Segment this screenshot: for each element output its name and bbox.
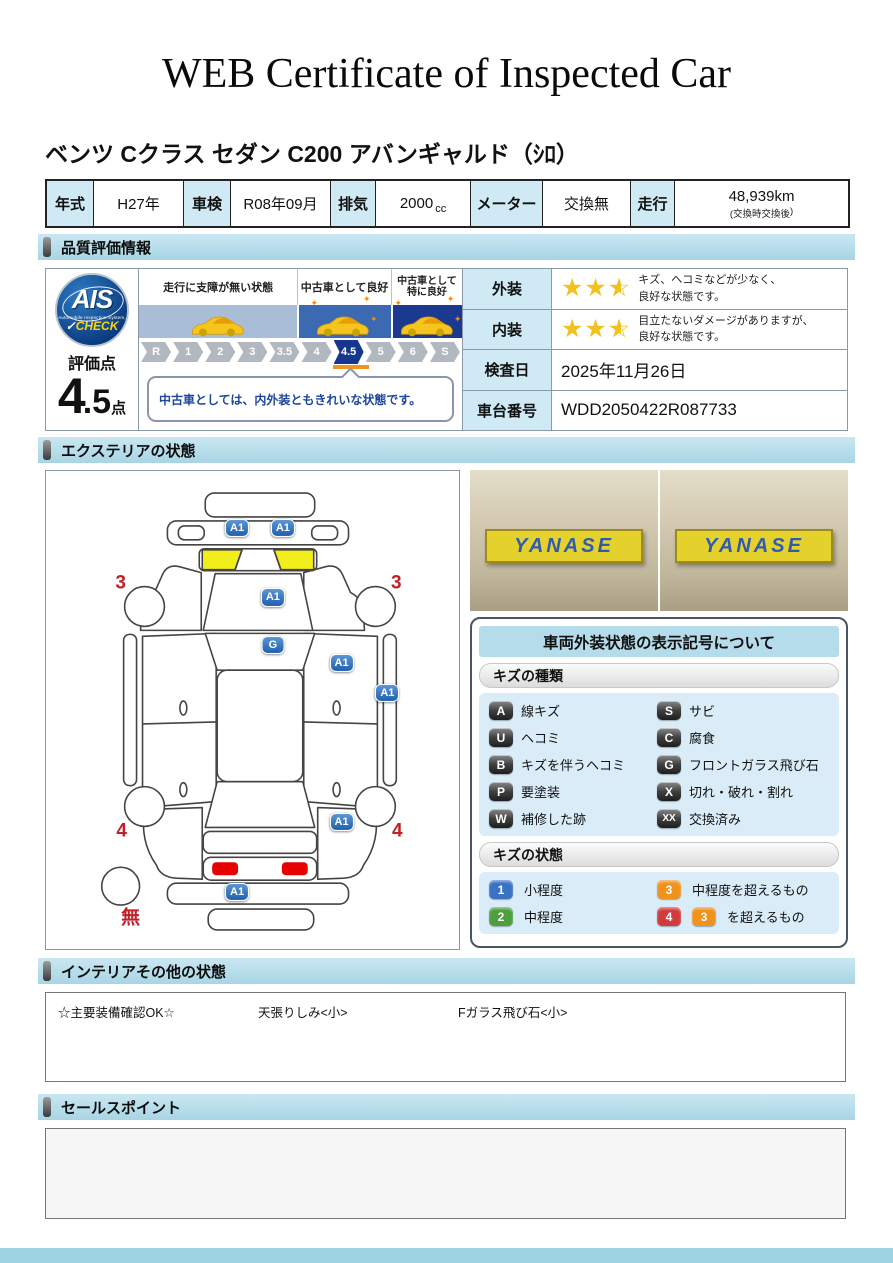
spec-year-label: 年式 [47,181,94,226]
table-row: 車台番号 WDD2050422R087733 [463,391,847,431]
sparkle-icon: ✦ [370,315,378,324]
legend-kind-item: W補修した跡 [489,805,657,832]
kind-label: 切れ・破れ・割れ [689,782,793,801]
inspection-date-label: 検査日 [463,350,552,390]
mileage-number: 48,939km [729,188,795,205]
mileage-note-open: (交換時 [730,206,762,220]
legend-kind-grid: A線キズSサビUヘコミC腐食Bキズを伴うヘコミGフロントガラス飛び石P要塗装X切… [479,693,839,836]
score-unit: 点 [111,402,126,416]
kind-badge-U: U [489,728,513,747]
damage-legend: 車両外装状態の表示記号について キズの種類 A線キズSサビUヘコミC腐食Bキズを… [470,617,848,948]
car-icon [189,301,245,337]
kind-badge-B: B [489,755,513,774]
damage-marker-G: G [261,636,284,654]
kind-label: サビ [689,701,715,720]
rating-comment-bubble: 中古車としては、内外装ともきれいな状態です。 [147,376,454,422]
star-full-icon: ★ [584,274,607,302]
star-rating: ★★☆★ [561,317,631,342]
spec-year-value: H27年 [94,181,184,226]
damage-marker-A1: A1 [375,684,399,702]
section-header-quality: 品質評価情報 [38,234,855,260]
interior-rating-value: ★★☆★ 目立たないダメージがありますが、 良好な状態です。 [552,310,847,350]
section-title: 品質評価情報 [61,237,151,258]
scale-step-3: 3 [237,342,267,362]
legend-state-grid: 1小程度3中程度を超えるもの2中程度43を超えるもの [479,872,839,934]
score-fraction: .5 [83,387,111,418]
sales-point-box [45,1128,846,1219]
interior-notes-box: ☆主要装備確認OK☆天張りしみ<小>Fガラス飛び石<小> [45,992,846,1082]
damage-marker-A1: A1 [225,883,249,901]
section-header-interior: インテリアその他の状態 [38,958,855,984]
header-accent-bar [43,237,51,257]
header-accent-bar [43,440,51,460]
kind-label: 交換済み [689,809,741,828]
mileage-note-mid: 交換後 [761,206,790,220]
scale-step-5: 5 [366,342,396,362]
text-line: キズ、ヘコミなどが少なく、 [638,274,781,286]
star-rating: ★★☆★ [561,276,631,301]
scale-step-4: 4 [301,342,331,362]
legend-state-item: 2中程度 [489,903,657,930]
spec-displacement-value: 2000 cc [376,181,471,226]
rating-detail-table: 外装 ★★☆★ キズ、ヘコミなどが少なく、 良好な状態です。 内装 ★★☆★ 目… [463,269,847,430]
ais-score-panel: AIS Automobile Inspection System, ✓CHECK… [46,269,139,430]
quality-box: AIS Automobile Inspection System, ✓CHECK… [45,268,848,431]
wheel-grade-4: 4 [392,822,403,841]
exterior-rating-text: キズ、ヘコミなどが少なく、 良好な状態です。 [638,272,781,305]
kind-badge-W: W [489,809,513,828]
wheel-grade-無: 無 [121,909,140,928]
page-title: WEB Certificate of Inspected Car [0,50,893,98]
check-mark-icon: ✓ [66,319,76,333]
table-row: 内装 ★★☆★ 目立たないダメージがありますが、 良好な状態です。 [463,310,847,351]
legend-state-item: 1小程度 [489,876,657,903]
legend-kind-header: キズの種類 [479,663,839,688]
star-full-icon: ★ [561,315,584,343]
kind-badge-XX: XX [657,809,681,828]
car-icon: ✦✦✦ [314,301,370,337]
state-badge-3: 3 [657,880,681,899]
kind-label: 補修した跡 [521,809,586,828]
legend-state-header: キズの状態 [479,842,839,867]
star-full-icon: ★ [584,315,607,343]
spec-table: 年式 H27年 車検 R08年09月 排気 2000 cc メーター 交換無 走… [45,179,850,228]
legend-kind-item: Gフロントガラス飛び石 [657,751,829,778]
state-label: 中程度を超えるもの [692,880,809,899]
star-half-icon: ☆★ [608,276,631,301]
sparkle-icon: ✦ [394,299,402,308]
interior-note: Fガラス飛び石<小> [458,1002,658,1072]
wheel-grade-3: 3 [115,573,126,592]
damage-marker-A1: A1 [330,812,354,830]
spec-inspection-label: 車検 [184,181,231,226]
scale-step-6: 6 [398,342,428,362]
score-value: 4 .5 点 [58,374,126,419]
check-word: CHECK [76,319,119,333]
exterior-photo: YANASE [660,470,848,611]
zone-label-1: 走行に支障が無い状態 [139,269,297,305]
footer-bar [0,1248,893,1263]
exterior-rating-value: ★★☆★ キズ、ヘコミなどが少なく、 良好な状態です。 [552,269,847,309]
legend-state-item: 43を超えるもの [657,903,829,930]
section-header-exterior: エクステリアの状態 [38,437,855,463]
sparkle-icon: ✦ [310,299,318,308]
sparkle-icon: ✦ [447,295,455,304]
section-title: インテリアその他の状態 [61,961,226,982]
displacement-number: 2000 [400,195,433,212]
wheel-grade-3: 3 [391,573,402,592]
vin-label: 車台番号 [463,391,552,431]
spec-meter-label: メーター [471,181,543,226]
spec-meter-value: 交換無 [543,181,631,226]
kind-label: 腐食 [689,728,715,747]
exterior-photos: YANASEYANASE [470,470,848,611]
legend-kind-item: Uヘコミ [489,724,657,751]
damage-marker-A1: A1 [330,654,354,672]
state-badge-3: 3 [692,907,716,926]
damage-marker-A1: A1 [225,519,249,537]
legend-kind-item: XX交換済み [657,805,829,832]
ais-logo-text: AIS [72,286,112,312]
legend-kind-item: C腐食 [657,724,829,751]
spec-mileage-value: 48,939km (交換時 交換後 ) [675,181,848,226]
state-badge-1: 1 [489,880,513,899]
star-half-icon: ☆★ [608,317,631,342]
legend-kind-item: A線キズ [489,697,657,724]
state-label: を超えるもの [727,907,805,926]
car-name: ベンツ Cクラス セダン C200 アバンギャルド（ｼﾛ） [45,135,579,169]
score-integer: 4 [58,374,83,419]
interior-rating-label: 内装 [463,310,552,350]
kind-badge-G: G [657,755,681,774]
scale-step-S: S [430,342,460,362]
interior-note: ☆主要装備確認OK☆ [58,1002,258,1072]
inspection-date-value: 2025年11月26日 [552,350,847,390]
scale-step-1: 1 [173,342,203,362]
text-line: 良好な状態です。 [638,331,725,343]
ais-check-text: ✓CHECK [66,320,119,333]
legend-kind-item: X切れ・破れ・割れ [657,778,829,805]
spec-displacement-label: 排気 [331,181,376,226]
kind-label: ヘコミ [521,728,560,747]
kind-label: 線キズ [521,701,560,720]
ais-logo: AIS Automobile Inspection System, ✓CHECK [55,273,129,347]
text-line: 良好な状態です。 [638,291,725,303]
legend-state-item: 3中程度を超えるもの [657,876,829,903]
state-label: 中程度 [524,907,563,926]
legend-title: 車両外装状態の表示記号について [479,626,839,657]
table-row: 検査日 2025年11月26日 [463,350,847,391]
rating-band: ✦✦✦ ✦✦✦ [139,305,462,338]
mileage-note-close: ) [790,206,793,220]
certificate-page: WEB Certificate of Inspected Car ベンツ Cクラ… [0,0,893,1263]
text-line: 目立たないダメージがありますが、 [638,315,813,327]
scale-step-3.5: 3.5 [269,342,299,362]
exterior-rating-label: 外装 [463,269,552,309]
legend-kind-item: Bキズを伴うヘコミ [489,751,657,778]
zone-labels: 走行に支障が無い状態 中古車として良好 中古車として特に良好 [139,269,462,305]
section-header-sales: セールスポイント [38,1094,855,1120]
legend-kind-item: P要塗装 [489,778,657,805]
header-accent-bar [43,961,51,981]
section-title: エクステリアの状態 [61,440,196,461]
header-accent-bar [43,1097,51,1117]
kind-badge-A: A [489,701,513,720]
scale-step-R: R [141,342,171,362]
yanase-sign: YANASE [675,529,833,563]
exterior-photo: YANASE [470,470,658,611]
interior-rating-text: 目立たないダメージがありますが、 良好な状態です。 [638,313,813,346]
car-icon: ✦✦✦ [398,301,454,337]
kind-badge-X: X [657,782,681,801]
legend-kind-item: Sサビ [657,697,829,724]
kind-badge-P: P [489,782,513,801]
damage-marker-A1: A1 [271,519,295,537]
kind-label: フロントガラス飛び石 [689,755,819,774]
state-label: 小程度 [524,880,563,899]
rating-scale: R1233.544.556S [139,338,462,364]
displacement-unit: cc [435,203,446,215]
rating-scale-panel: 走行に支障が無い状態 中古車として良好 中古車として特に良好 ✦✦✦ ✦✦✦ [139,269,463,430]
sparkle-icon: ✦ [363,295,371,304]
kind-badge-S: S [657,701,681,720]
scale-step-2: 2 [205,342,235,362]
kind-badge-C: C [657,728,681,747]
table-row: 外装 ★★☆★ キズ、ヘコミなどが少なく、 良好な状態です。 [463,269,847,310]
star-full-icon: ★ [561,274,584,302]
yanase-sign: YANASE [485,529,643,563]
mileage-note: (交換時 交換後 ) [730,206,793,220]
section-title: セールスポイント [61,1097,181,1118]
sparkle-icon: ✦ [454,315,462,324]
spec-mileage-label: 走行 [631,181,675,226]
state-badge-2: 2 [489,907,513,926]
vin-value: WDD2050422R087733 [552,391,847,431]
spec-inspection-value: R08年09月 [231,181,331,226]
state-badge-4: 4 [657,907,681,926]
wheel-grade-4: 4 [116,822,127,841]
car-diagram-svg [46,471,459,949]
kind-label: 要塗装 [521,782,560,801]
car-damage-diagram: A1A1A1GA1A1A1A13344無 [45,470,460,950]
damage-marker-A1: A1 [261,588,285,606]
kind-label: キズを伴うヘコミ [521,755,625,774]
interior-note: 天張りしみ<小> [258,1002,458,1072]
scale-step-4.5: 4.5 [334,340,364,364]
